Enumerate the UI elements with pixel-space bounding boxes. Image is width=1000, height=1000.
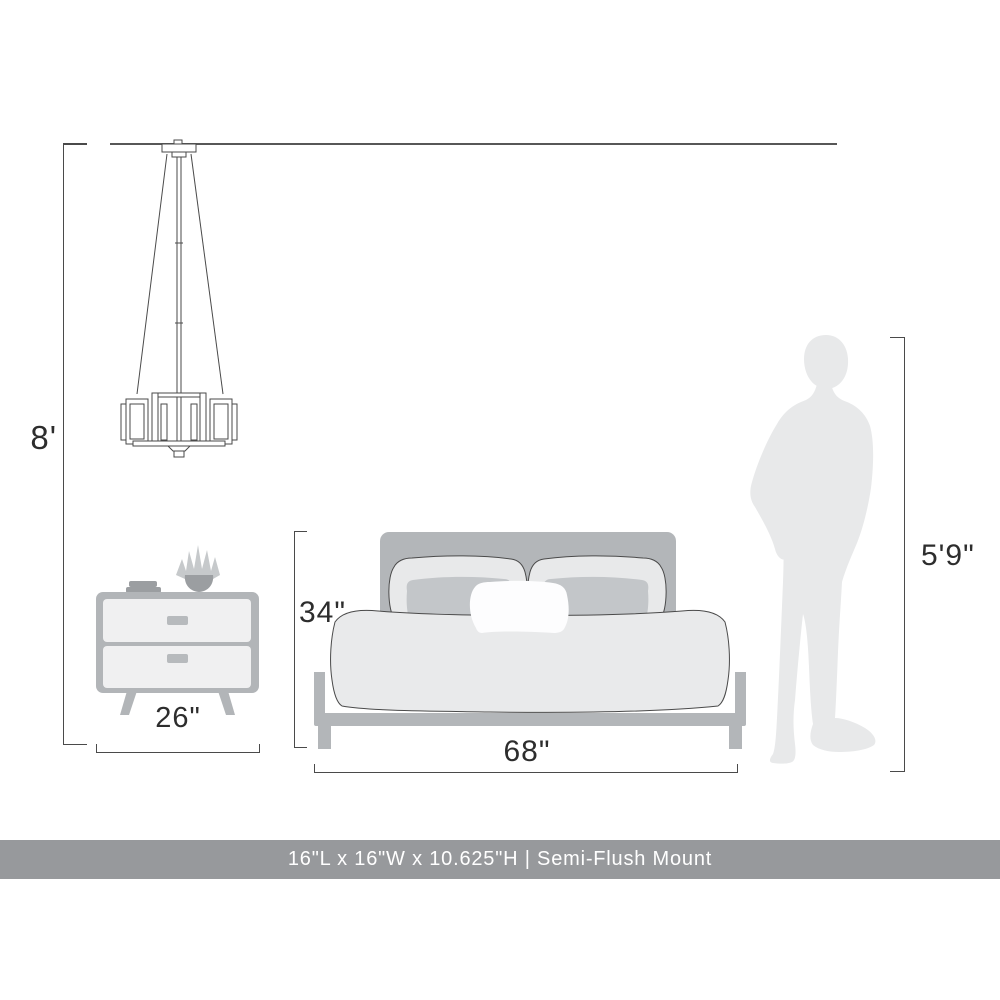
person-body xyxy=(750,384,875,764)
nightstand-dim-line xyxy=(96,752,260,753)
pendant-light-illustration xyxy=(115,138,245,468)
ceiling-height-label: 8' xyxy=(0,421,57,454)
plant-leaves xyxy=(176,545,220,579)
bed-width-tick-right xyxy=(737,764,738,773)
product-dimensions-text: 16"L x 16"W x 10.625"H | Semi-Flush Moun… xyxy=(288,848,712,871)
person-height-label: 5'9" xyxy=(921,541,975,571)
drawer-handle-top xyxy=(167,616,188,625)
ceiling-dim-tick-bottom xyxy=(63,744,87,745)
nightstand-width-label: 26" xyxy=(118,704,238,733)
bed-height-tick-bottom xyxy=(294,747,307,748)
nightstand-illustration xyxy=(88,545,268,720)
person-dim-line xyxy=(904,337,905,772)
bed-center-pillow xyxy=(470,581,569,633)
bed-width-label: 68" xyxy=(467,737,587,767)
ceiling-dim-line xyxy=(63,144,64,744)
person-head xyxy=(804,335,848,389)
drawer-handle-bottom xyxy=(167,654,188,663)
person-silhouette-illustration xyxy=(740,332,890,767)
bed-height-label: 34" xyxy=(299,598,346,628)
nightstand-dim-tick-right xyxy=(259,744,260,753)
bed-rail-left xyxy=(314,672,325,720)
bed-illustration xyxy=(310,525,750,755)
dimension-diagram: 8' xyxy=(0,0,1000,1000)
plant-pot xyxy=(185,575,213,592)
book-top xyxy=(129,581,157,587)
bed-base-bar xyxy=(314,713,746,726)
bed-height-dim-line xyxy=(294,531,295,748)
bed-width-dim-line xyxy=(314,772,738,773)
bed-leg-left xyxy=(318,726,331,749)
person-dim-tick-top xyxy=(890,337,905,338)
product-dimensions-banner: 16"L x 16"W x 10.625"H | Semi-Flush Moun… xyxy=(0,840,1000,879)
nightstand-drawer-bottom xyxy=(103,646,251,688)
ceiling-dim-tick-top xyxy=(63,143,87,145)
bed-width-tick-left xyxy=(314,764,315,773)
nightstand-dim-tick-left xyxy=(96,744,97,753)
person-dim-tick-bottom xyxy=(890,771,905,772)
bed-height-tick-top xyxy=(294,531,307,532)
